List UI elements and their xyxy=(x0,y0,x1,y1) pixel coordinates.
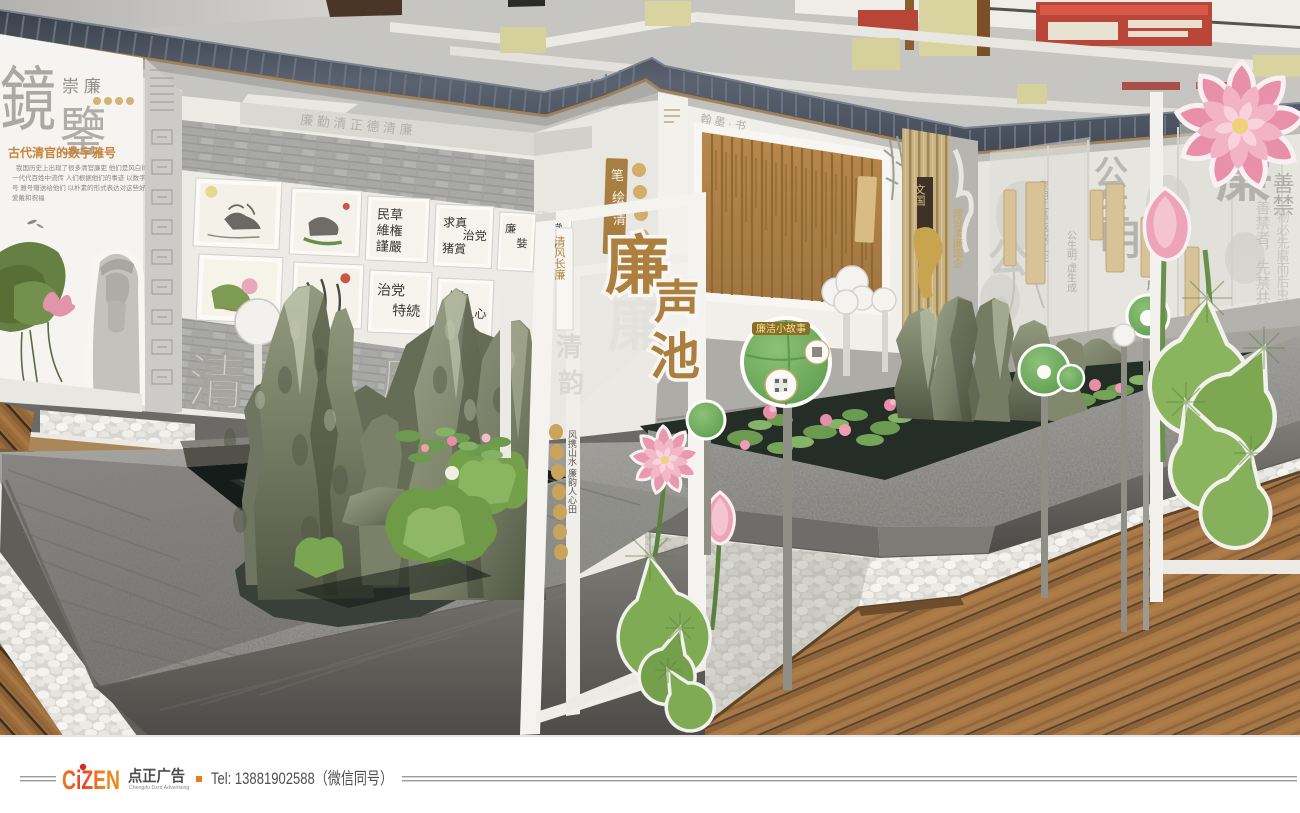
svg-text:鏡: 鏡 xyxy=(0,61,56,139)
svg-text:物必先腐而后虫生: 物必先腐而后虫生 xyxy=(1275,210,1290,314)
svg-text:池: 池 xyxy=(650,329,700,385)
svg-text:清: 清 xyxy=(556,332,582,362)
svg-text:爱戴和祝福: 爱戴和祝福 xyxy=(12,193,45,202)
svg-text:古代清官的数字雅号: 古代清官的数字雅号 xyxy=(8,145,116,160)
svg-text:CiZEN: CiZEN xyxy=(62,765,120,795)
svg-text:崇 廉: 崇 廉 xyxy=(62,77,101,96)
svg-text:Tel: 13881902588（微信同号）: Tel: 13881902588（微信同号） xyxy=(211,769,393,788)
svg-text:Chengdu Dzrd Advertising: Chengdu Dzrd Advertising xyxy=(129,785,189,791)
svg-text:維権: 維権 xyxy=(376,222,403,238)
svg-text:民草: 民草 xyxy=(377,206,404,222)
svg-text:治党: 治党 xyxy=(377,281,406,298)
svg-text:特続: 特続 xyxy=(392,302,421,319)
svg-text:治党: 治党 xyxy=(462,227,487,243)
svg-text:公生明 虚生成: 公生明 虚生成 xyxy=(1065,230,1077,294)
svg-text:风携山水 廉韵人心田: 风携山水 廉韵人心田 xyxy=(567,430,577,515)
svg-text:廉洁小故事: 廉洁小故事 xyxy=(756,322,806,335)
svg-text:猪賞: 猪賞 xyxy=(442,241,467,256)
svg-text:文国: 文国 xyxy=(913,183,926,207)
svg-text:点正广告: 点正广告 xyxy=(128,766,185,785)
svg-text:廉: 廉 xyxy=(505,221,517,236)
svg-text:謹嚴: 謹嚴 xyxy=(376,238,403,254)
svg-text:笔: 笔 xyxy=(611,168,624,183)
svg-text:建设清廉国企: 建设清廉国企 xyxy=(951,207,963,268)
svg-text:清风长廉: 清风长廉 xyxy=(553,236,566,281)
svg-text:娤: 娤 xyxy=(516,237,528,251)
svg-text:一代代百姓中流传 人们根据他们的事迹 以数字雅号 称: 一代代百姓中流传 人们根据他们的事迹 以数字雅号 称 xyxy=(12,173,167,182)
svg-text:声: 声 xyxy=(654,276,700,328)
svg-text:韵: 韵 xyxy=(558,368,584,398)
